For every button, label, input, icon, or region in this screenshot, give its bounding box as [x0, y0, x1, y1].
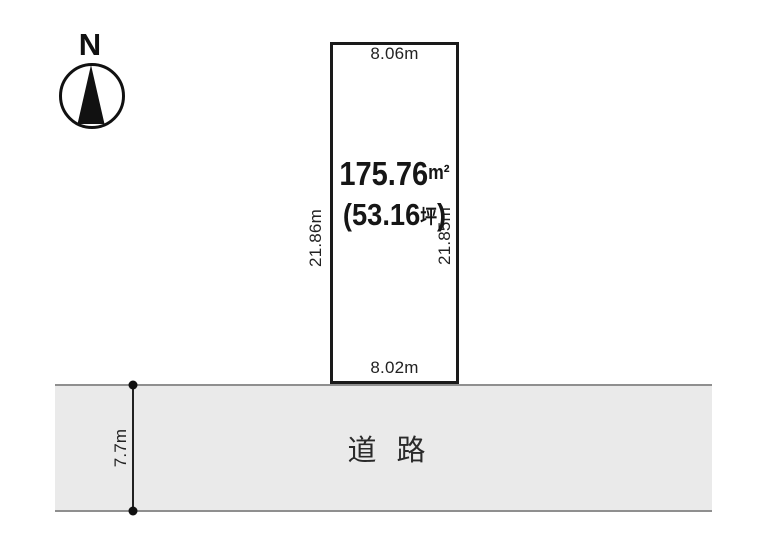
compass-north-arrow-icon: [58, 62, 126, 130]
plot-area-tsubo-value: (53.16: [343, 197, 420, 232]
road-width-label: 7.7m: [111, 429, 131, 468]
compass-north-label: N: [79, 27, 101, 63]
plot-top-width-label: 8.06m: [330, 44, 459, 64]
plot-area-sqm: 175.76m²: [331, 156, 459, 198]
plot-area-sqm-unit: m²: [428, 162, 450, 184]
road-area: 道 路: [55, 384, 712, 512]
land-plot-diagram: N 8.06m 8.02m 21.86m 21.85m 175.76m² (53…: [0, 0, 768, 536]
road-width-dimension-line: [132, 384, 134, 512]
plot-area-label: 175.76m² (53.16坪): [331, 156, 459, 238]
plot-bottom-width-label: 8.02m: [330, 358, 459, 378]
plot-area-tsubo-unit: 坪: [420, 207, 437, 228]
plot-left-depth-label: 21.86m: [306, 209, 326, 267]
road-dimension-dot-bottom: [129, 507, 138, 516]
plot-area-tsubo: (53.16坪): [331, 198, 459, 238]
road-dimension-dot-top: [129, 381, 138, 390]
plot-area-sqm-value: 175.76: [339, 155, 428, 192]
road-label: 道 路: [347, 427, 431, 469]
plot-area-tsubo-close: ): [437, 197, 446, 232]
